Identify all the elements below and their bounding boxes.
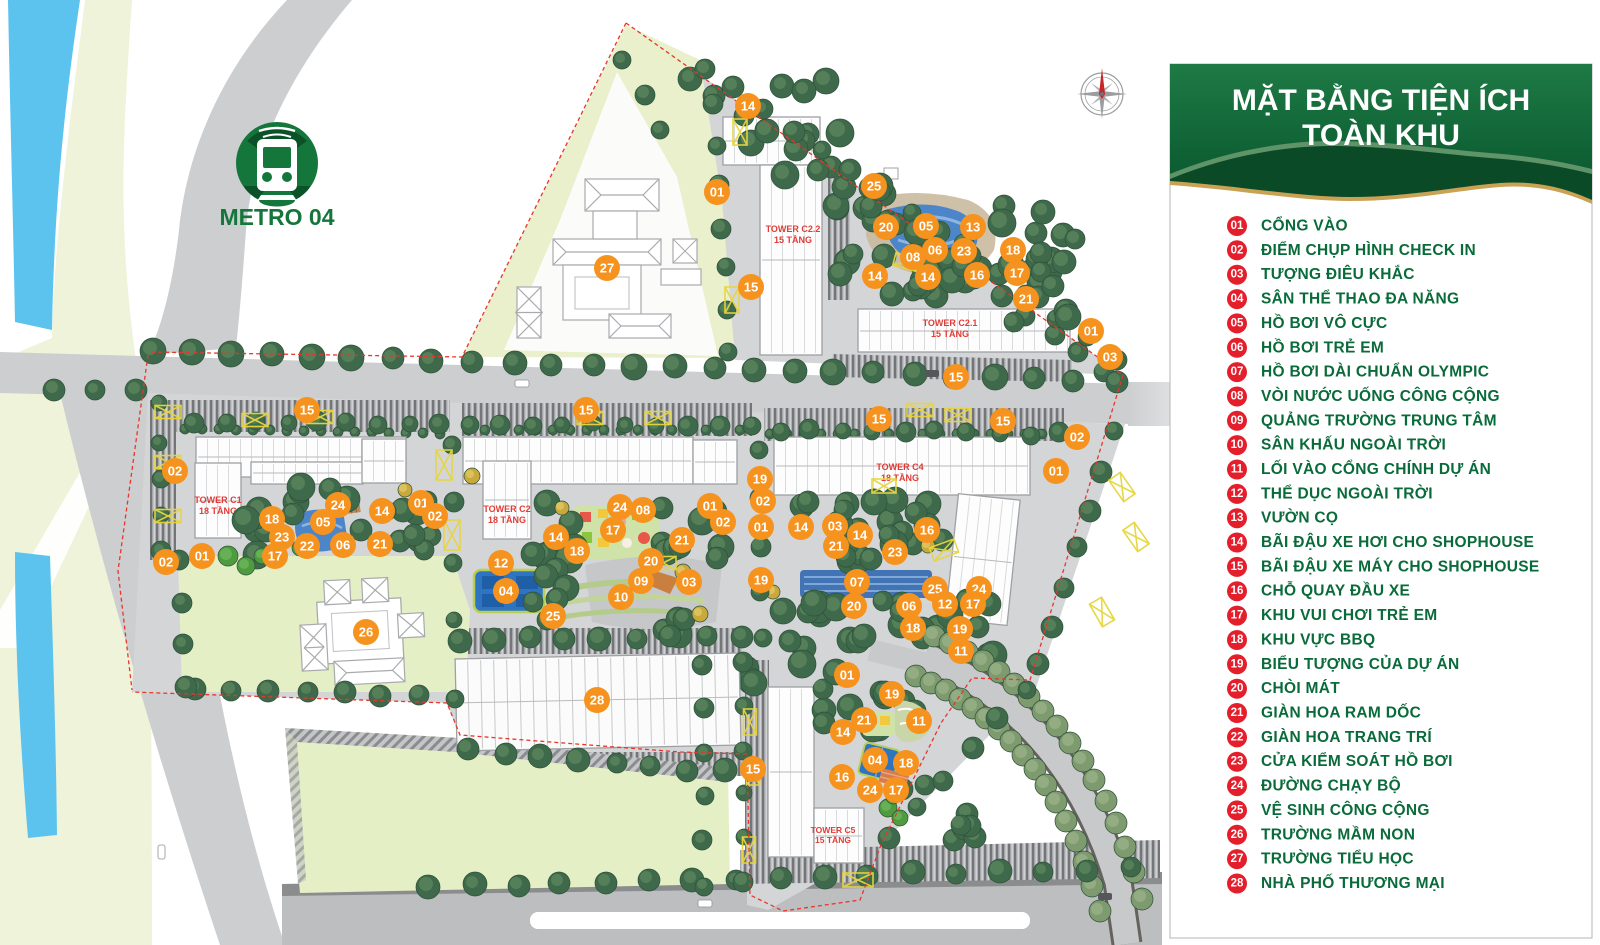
svg-text:01: 01 — [1084, 324, 1098, 339]
svg-text:12: 12 — [938, 597, 952, 612]
svg-text:14: 14 — [921, 270, 936, 285]
svg-text:18 TẦNG: 18 TẦNG — [488, 515, 526, 525]
svg-text:16: 16 — [970, 268, 984, 283]
svg-text:15: 15 — [872, 412, 886, 427]
svg-text:21: 21 — [373, 537, 387, 552]
svg-text:CỔNG VÀO: CỔNG VÀO — [1261, 217, 1348, 235]
svg-text:TOWER C2.2: TOWER C2.2 — [766, 224, 821, 234]
svg-text:16: 16 — [920, 523, 934, 538]
svg-text:09: 09 — [1231, 415, 1244, 427]
svg-text:KHU VỰC BBQ: KHU VỰC BBQ — [1261, 632, 1375, 649]
svg-text:15: 15 — [949, 370, 963, 385]
svg-text:07: 07 — [1231, 366, 1244, 378]
svg-text:15: 15 — [579, 403, 593, 418]
svg-text:14: 14 — [836, 725, 851, 740]
svg-text:HỒ BƠI TRẺ EM: HỒ BƠI TRẺ EM — [1261, 338, 1384, 356]
svg-text:21: 21 — [675, 533, 689, 548]
svg-text:12: 12 — [494, 556, 508, 571]
svg-text:02: 02 — [168, 464, 182, 479]
svg-text:TOWER C5: TOWER C5 — [811, 825, 856, 835]
svg-text:15: 15 — [300, 403, 314, 418]
svg-text:TRƯỜNG TIỂU HỌC: TRƯỜNG TIỂU HỌC — [1261, 850, 1414, 868]
svg-text:TƯỢNG ĐIÊU KHẮC: TƯỢNG ĐIÊU KHẮC — [1261, 265, 1415, 283]
svg-text:16: 16 — [835, 770, 849, 785]
svg-text:SÂN THỂ THAO ĐA NĂNG: SÂN THỂ THAO ĐA NĂNG — [1261, 290, 1459, 308]
svg-text:15: 15 — [996, 414, 1010, 429]
svg-text:15: 15 — [1231, 561, 1244, 573]
svg-text:04: 04 — [868, 753, 883, 768]
svg-text:24: 24 — [613, 500, 628, 515]
svg-text:02: 02 — [159, 555, 173, 570]
svg-text:06: 06 — [928, 243, 942, 258]
svg-text:13: 13 — [1231, 512, 1244, 524]
svg-text:15: 15 — [746, 762, 760, 777]
svg-text:10: 10 — [614, 590, 628, 605]
svg-text:TOWER C2: TOWER C2 — [483, 504, 530, 514]
svg-text:20: 20 — [847, 599, 861, 614]
svg-text:ĐƯỜNG CHẠY BỘ: ĐƯỜNG CHẠY BỘ — [1261, 777, 1401, 795]
svg-text:14: 14 — [853, 528, 868, 543]
svg-text:21: 21 — [1231, 707, 1244, 719]
svg-text:18: 18 — [906, 621, 920, 636]
svg-text:HỒ BƠI VÔ CỰC: HỒ BƠI VÔ CỰC — [1261, 314, 1387, 332]
svg-text:01: 01 — [703, 499, 717, 514]
svg-text:25: 25 — [546, 609, 560, 624]
svg-text:07: 07 — [850, 575, 864, 590]
svg-text:METRO 04: METRO 04 — [219, 204, 334, 230]
svg-text:15 TẦNG: 15 TẦNG — [774, 235, 812, 245]
svg-text:15 TẦNG: 15 TẦNG — [931, 329, 969, 339]
svg-text:18: 18 — [1006, 243, 1020, 258]
svg-text:08: 08 — [636, 503, 650, 518]
svg-text:03: 03 — [682, 575, 696, 590]
svg-text:09: 09 — [634, 574, 648, 589]
svg-text:22: 22 — [1231, 731, 1244, 743]
svg-text:GIÀN HOA RAM DỐC: GIÀN HOA RAM DỐC — [1261, 704, 1421, 722]
svg-text:25: 25 — [1231, 804, 1244, 816]
svg-text:VỆ SINH CÔNG CỘNG: VỆ SINH CÔNG CỘNG — [1261, 801, 1430, 819]
svg-text:14: 14 — [741, 99, 756, 114]
svg-text:BÃI ĐẬU XE HƠI CHO SHOPHOUSE: BÃI ĐẬU XE HƠI CHO SHOPHOUSE — [1261, 533, 1534, 551]
svg-text:02: 02 — [716, 515, 730, 530]
svg-text:NHÀ PHỐ THƯƠNG MẠI: NHÀ PHỐ THƯƠNG MẠI — [1261, 874, 1445, 892]
svg-text:24: 24 — [863, 783, 878, 798]
svg-text:25: 25 — [867, 179, 881, 194]
svg-text:ĐIỂM CHỤP HÌNH CHECK IN: ĐIỂM CHỤP HÌNH CHECK IN — [1261, 241, 1476, 259]
svg-text:SÂN KHẤU NGOÀI TRỜI: SÂN KHẤU NGOÀI TRỜI — [1261, 436, 1446, 454]
svg-text:CỬA KIỂM SOÁT HỒ BƠI: CỬA KIỂM SOÁT HỒ BƠI — [1261, 752, 1453, 770]
svg-text:CHÒI MÁT: CHÒI MÁT — [1261, 679, 1340, 697]
svg-text:BÃI ĐẬU XE MÁY CHO SHOPHOUSE: BÃI ĐẬU XE MÁY CHO SHOPHOUSE — [1261, 557, 1540, 575]
svg-text:12: 12 — [1231, 488, 1244, 500]
svg-text:14: 14 — [1231, 537, 1244, 549]
svg-text:27: 27 — [1231, 853, 1244, 865]
svg-text:24: 24 — [1231, 780, 1244, 792]
svg-text:VƯỜN CỌ: VƯỜN CỌ — [1261, 509, 1338, 527]
svg-text:17: 17 — [606, 523, 620, 538]
svg-text:19: 19 — [953, 622, 967, 637]
svg-text:22: 22 — [300, 539, 314, 554]
svg-text:19: 19 — [753, 472, 767, 487]
svg-text:23: 23 — [1231, 756, 1244, 768]
svg-text:TOWER C2.1: TOWER C2.1 — [923, 318, 978, 328]
svg-text:08: 08 — [906, 250, 920, 265]
svg-text:BIỂU TƯỢNG CỦA DỰ ÁN: BIỂU TƯỢNG CỦA DỰ ÁN — [1261, 655, 1460, 673]
svg-text:02: 02 — [1070, 430, 1084, 445]
svg-text:17: 17 — [1010, 266, 1024, 281]
svg-text:TOWER C1: TOWER C1 — [194, 495, 241, 505]
svg-text:01: 01 — [710, 185, 724, 200]
svg-text:01: 01 — [1049, 464, 1063, 479]
svg-text:14: 14 — [868, 269, 883, 284]
svg-text:05: 05 — [919, 219, 933, 234]
svg-text:02: 02 — [1231, 244, 1244, 256]
svg-text:21: 21 — [857, 713, 871, 728]
svg-text:21: 21 — [829, 539, 843, 554]
svg-text:13: 13 — [966, 220, 980, 235]
svg-text:11: 11 — [954, 644, 968, 659]
svg-text:06: 06 — [902, 599, 916, 614]
svg-text:23: 23 — [275, 530, 289, 545]
svg-text:26: 26 — [359, 625, 373, 640]
svg-text:GIÀN HOA TRANG TRÍ: GIÀN HOA TRANG TRÍ — [1261, 729, 1432, 746]
svg-text:20: 20 — [644, 554, 658, 569]
svg-text:23: 23 — [888, 545, 902, 560]
svg-text:QUẢNG TRƯỜNG TRUNG TÂM: QUẢNG TRƯỜNG TRUNG TÂM — [1261, 411, 1497, 429]
svg-text:19: 19 — [754, 573, 768, 588]
svg-text:20: 20 — [1231, 683, 1244, 695]
svg-text:26: 26 — [1231, 829, 1244, 841]
svg-text:18: 18 — [570, 544, 584, 559]
svg-text:01: 01 — [840, 668, 854, 683]
svg-text:18 TẦNG: 18 TẦNG — [199, 506, 237, 516]
svg-text:02: 02 — [428, 509, 442, 524]
svg-text:15: 15 — [744, 280, 758, 295]
svg-text:05: 05 — [1231, 317, 1244, 329]
svg-text:03: 03 — [828, 519, 842, 534]
svg-text:23: 23 — [957, 244, 971, 259]
svg-text:01: 01 — [1231, 220, 1244, 232]
svg-text:19: 19 — [885, 687, 899, 702]
svg-text:MẶT BẰNG TIỆN ÍCH: MẶT BẰNG TIỆN ÍCH — [1232, 83, 1530, 117]
svg-text:17: 17 — [889, 783, 903, 798]
svg-text:17: 17 — [268, 549, 282, 564]
svg-text:08: 08 — [1231, 391, 1244, 403]
svg-text:VÒI NƯỚC UỐNG CÔNG CỘNG: VÒI NƯỚC UỐNG CÔNG CỘNG — [1261, 387, 1500, 405]
svg-text:18: 18 — [265, 512, 279, 527]
svg-text:14: 14 — [794, 520, 809, 535]
svg-text:CHỖ QUAY ĐẦU XE: CHỖ QUAY ĐẦU XE — [1261, 582, 1410, 600]
svg-text:LỐI VÀO CỔNG CHÍNH DỰ ÁN: LỐI VÀO CỔNG CHÍNH DỰ ÁN — [1261, 460, 1491, 478]
svg-text:17: 17 — [966, 597, 980, 612]
svg-text:02: 02 — [756, 494, 770, 509]
svg-text:06: 06 — [336, 538, 350, 553]
svg-text:19: 19 — [1231, 658, 1244, 670]
svg-text:KHU VUI CHƠI TRẺ EM: KHU VUI CHƠI TRẺ EM — [1261, 607, 1438, 624]
svg-text:18 TẦNG: 18 TẦNG — [881, 473, 919, 483]
svg-text:01: 01 — [195, 549, 209, 564]
svg-text:06: 06 — [1231, 342, 1244, 354]
svg-text:18: 18 — [1231, 634, 1244, 646]
svg-text:04: 04 — [499, 584, 514, 599]
svg-text:24: 24 — [331, 498, 346, 513]
svg-text:03: 03 — [1103, 350, 1117, 365]
svg-text:21: 21 — [1019, 292, 1033, 307]
svg-text:20: 20 — [879, 220, 893, 235]
svg-text:11: 11 — [912, 714, 926, 729]
svg-text:TRƯỜNG MẦM NON: TRƯỜNG MẦM NON — [1261, 825, 1415, 843]
svg-text:TOÀN KHU: TOÀN KHU — [1302, 118, 1460, 152]
svg-text:15 TẦNG: 15 TẦNG — [815, 835, 851, 845]
svg-text:01: 01 — [754, 520, 768, 535]
svg-text:16: 16 — [1231, 585, 1244, 597]
svg-text:27: 27 — [600, 261, 614, 276]
svg-text:14: 14 — [375, 504, 390, 519]
svg-text:THỂ DỤC NGOÀI TRỜI: THỂ DỤC NGOÀI TRỜI — [1261, 484, 1433, 502]
svg-text:04: 04 — [1231, 293, 1244, 305]
svg-text:28: 28 — [590, 693, 604, 708]
svg-text:14: 14 — [549, 530, 564, 545]
svg-text:TOWER C4: TOWER C4 — [876, 462, 923, 472]
svg-text:10: 10 — [1231, 439, 1244, 451]
svg-text:03: 03 — [1231, 269, 1244, 281]
svg-text:18: 18 — [899, 756, 913, 771]
svg-text:11: 11 — [1231, 464, 1244, 476]
svg-text:HỒ BƠI DÀI CHUẨN OLYMPIC: HỒ BƠI DÀI CHUẨN OLYMPIC — [1261, 363, 1489, 381]
svg-text:17: 17 — [1231, 610, 1244, 622]
svg-text:28: 28 — [1231, 878, 1244, 890]
svg-text:05: 05 — [316, 515, 330, 530]
